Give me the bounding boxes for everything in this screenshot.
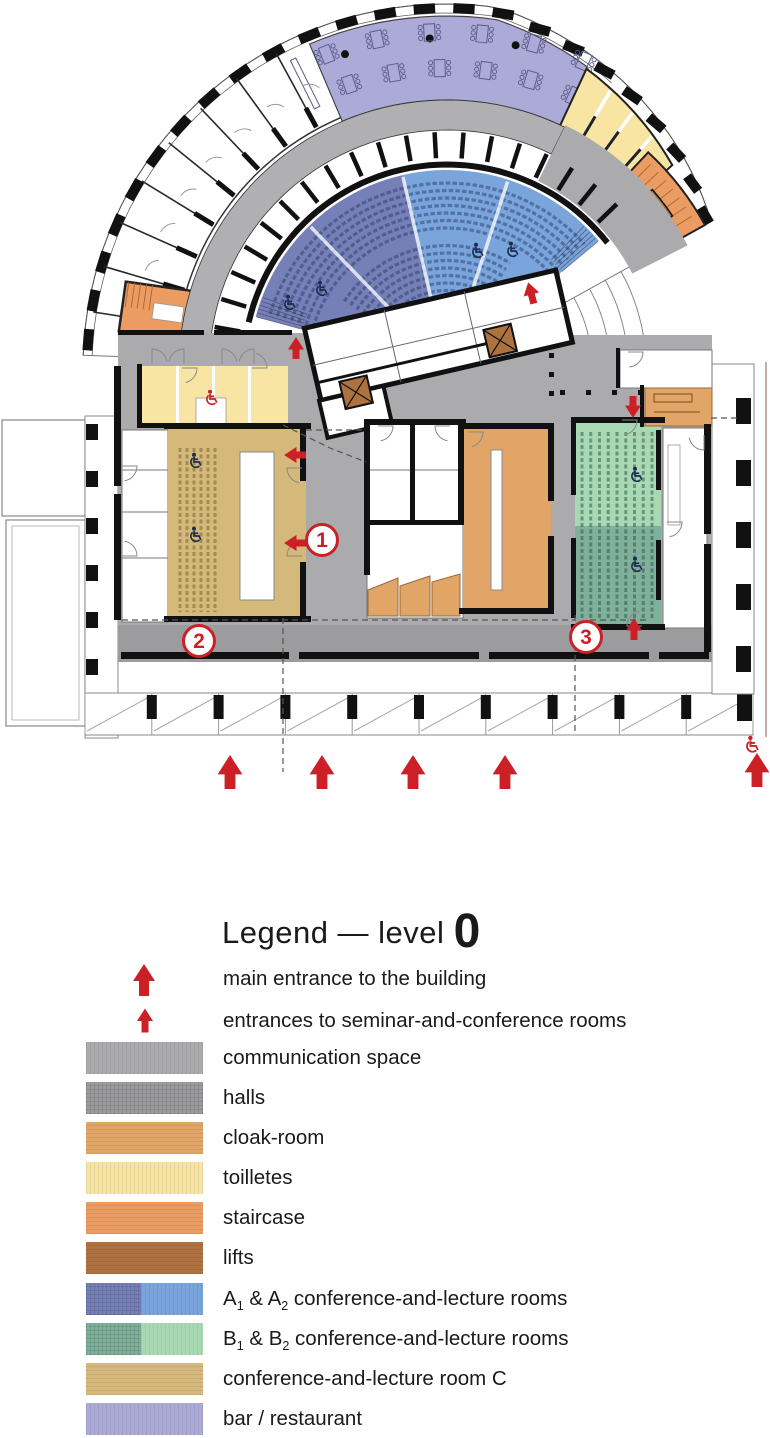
main-entrance-arrow (745, 753, 770, 787)
swatch-toilets (86, 1162, 203, 1194)
room-number-2: 2 (184, 626, 215, 657)
legend-label: lifts (223, 1242, 254, 1274)
legend-label: communication space (223, 1042, 421, 1074)
main-entrance-arrow (218, 755, 243, 789)
swatch-communication (86, 1042, 203, 1074)
svg-text:3: 3 (580, 626, 592, 649)
swatch-room-c (86, 1363, 203, 1395)
svg-text:1: 1 (316, 529, 328, 552)
legend-label: A1 & A2 conference-and-lecture rooms (223, 1283, 567, 1322)
seminar-entrance-arrow-icon (134, 1007, 156, 1034)
swatch-bar-restaurant (86, 1403, 203, 1435)
legend-label: main entrance to the building (223, 967, 486, 991)
main-entrance-arrow (310, 755, 335, 789)
room-number-1: 1 (307, 525, 338, 556)
main-entrance-arrow (401, 755, 426, 789)
swatch-cloakroom (86, 1122, 203, 1154)
main-entrance-arrow-icon (129, 962, 159, 998)
legend-label: cloak-room (223, 1122, 324, 1154)
swatch-rooms-b (86, 1323, 203, 1355)
room-number-3: 3 (571, 622, 602, 653)
floor-plan: 1 2 3 (0, 0, 770, 840)
floor-plan-page: 1 2 3 Legend — level 0 main entrance to … (0, 0, 770, 1438)
main-entrance-arrow (493, 755, 518, 789)
legend-label: toilletes (223, 1162, 293, 1194)
legend-label: conference-and-lecture room C (223, 1363, 507, 1395)
legend-label: bar / restaurant (223, 1403, 362, 1435)
svg-text:2: 2 (193, 630, 205, 653)
swatch-lifts (86, 1242, 203, 1274)
swatch-rooms-a (86, 1283, 203, 1315)
swatch-halls (86, 1082, 203, 1114)
legend-label: entrances to seminar-and-conference room… (223, 1009, 626, 1033)
legend-label: staircase (223, 1202, 305, 1234)
wheelchair-icon (747, 736, 758, 752)
legend-label: halls (223, 1082, 265, 1114)
floor-plan-drawing: 1 2 3 (0, 0, 770, 840)
legend-label: B1 & B2 conference-and-lecture rooms (223, 1323, 569, 1362)
swatch-staircase (86, 1202, 203, 1234)
legend-title: Legend — level 0 (222, 904, 480, 959)
